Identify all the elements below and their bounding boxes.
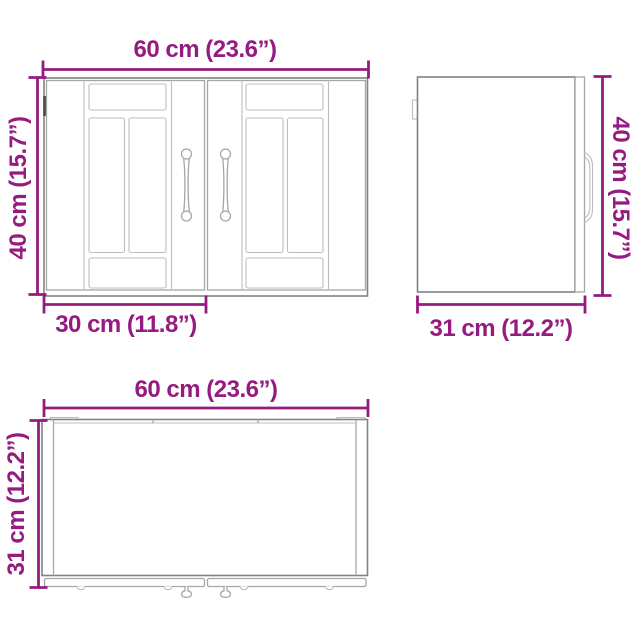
side-door-handle [585, 153, 593, 223]
left-door-outline [47, 81, 205, 291]
side-carcass [418, 77, 576, 292]
front-door-width-label: 30 cm (11.8”) [55, 311, 197, 339]
product-dimension-diagram: 60 cm (23.6”) 40 cm (15.7”) 30 cm (11.8”… [0, 0, 640, 640]
side-depth-label: 31 cm (12.2”) [430, 315, 573, 343]
top-width-label: 60 cm (23.6”) [135, 376, 278, 404]
top-left-door-slab [45, 579, 205, 587]
top-door-slabs [45, 579, 367, 598]
side-door-slab [575, 77, 585, 292]
top-view-drawing [42, 418, 368, 598]
top-carcass [42, 420, 368, 576]
right-door-outline [208, 81, 366, 291]
front-view-drawing [43, 78, 367, 296]
top-right-door-slab [208, 579, 367, 587]
top-handle-profile [221, 587, 231, 598]
front-hinge-mark [43, 96, 46, 116]
hinge-cup-bump [164, 586, 172, 589]
hinge-cup-bump [77, 586, 85, 589]
front-left-door [47, 81, 205, 291]
top-depth-label: 31 cm (12.2”) [3, 433, 31, 576]
front-right-door [208, 81, 366, 291]
hinge-cup-bump [240, 586, 248, 589]
front-width-label: 60 cm (23.6”) [134, 36, 277, 64]
front-height-label: 40 cm (15.7”) [5, 117, 33, 260]
side-height-label: 40 cm (15.7”) [606, 117, 634, 260]
hinge-cup-bump [326, 586, 334, 589]
top-handle-profile [182, 587, 192, 598]
side-depth-dimension [418, 296, 586, 314]
side-view-drawing [413, 77, 593, 292]
